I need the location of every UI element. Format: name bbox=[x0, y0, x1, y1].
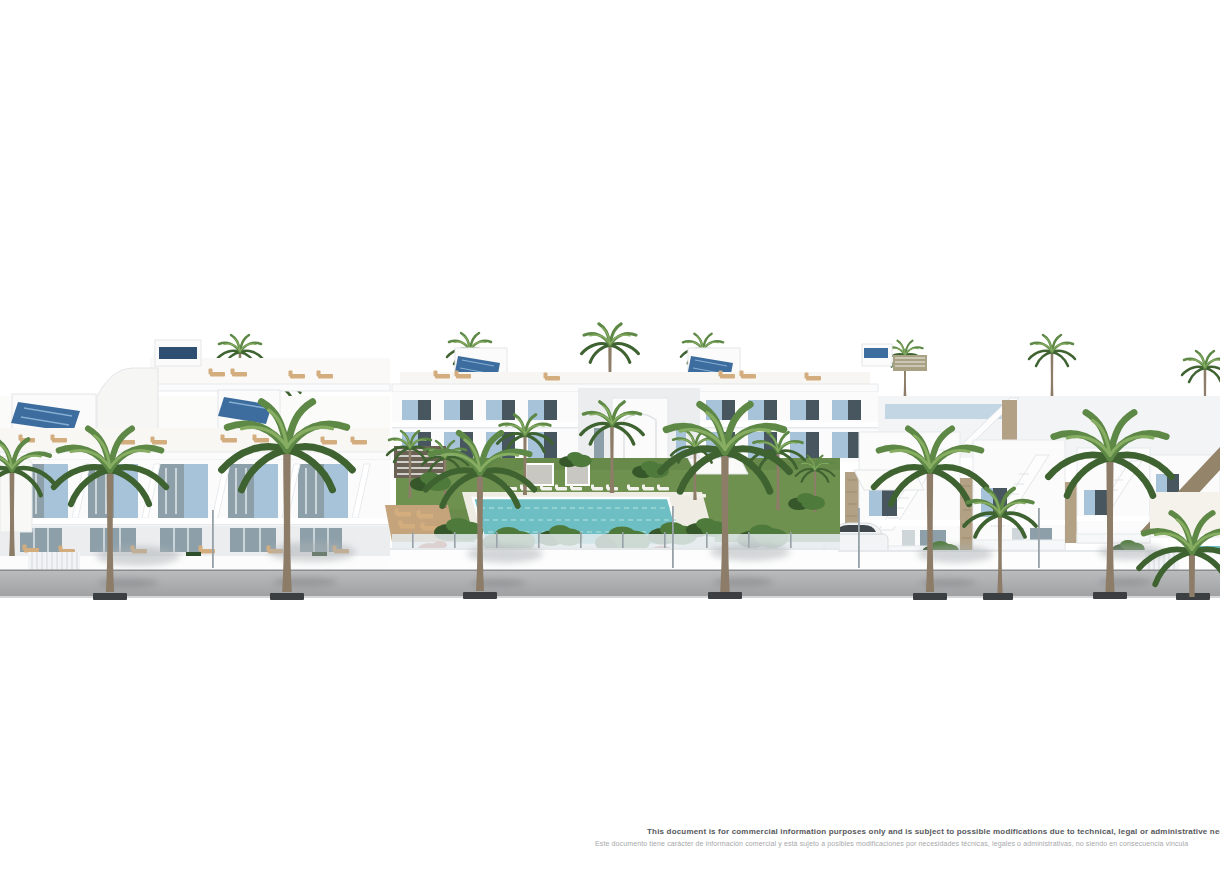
sidewalk-pavement bbox=[0, 570, 1220, 597]
tree-grate bbox=[270, 593, 304, 600]
tree-grate bbox=[463, 592, 497, 599]
terrace-balustrade bbox=[973, 540, 1065, 550]
tree-grate bbox=[913, 593, 947, 600]
shutter bbox=[1084, 490, 1095, 515]
residential-development-render bbox=[0, 0, 1220, 870]
palm-tree bbox=[1029, 335, 1075, 402]
disclaimer-line-spanish: Este documento tiene carácter de informa… bbox=[595, 838, 1220, 849]
roof-pergola bbox=[893, 355, 927, 371]
tree-grate bbox=[708, 592, 742, 599]
sidewalk bbox=[0, 570, 1220, 601]
distant-window-band bbox=[885, 404, 1003, 419]
disclaimer: This document is for commercial informat… bbox=[647, 826, 1220, 849]
disclaimer-line-english: This document is for commercial informat… bbox=[647, 826, 1220, 838]
solar-panel bbox=[159, 347, 197, 359]
solar-panel bbox=[864, 348, 888, 358]
floor-slab bbox=[0, 518, 390, 525]
architectural-render-page: This document is for commercial informat… bbox=[0, 0, 1220, 870]
curb-edge bbox=[0, 596, 1220, 598]
car-windshield bbox=[836, 525, 876, 532]
tree-grate bbox=[93, 593, 127, 600]
terrace-balustrade bbox=[1077, 534, 1150, 543]
slab-edge bbox=[0, 524, 390, 526]
curb-line bbox=[0, 570, 1220, 572]
window bbox=[1095, 490, 1108, 515]
tree-grate bbox=[1093, 592, 1127, 599]
tree-grate bbox=[983, 593, 1013, 600]
